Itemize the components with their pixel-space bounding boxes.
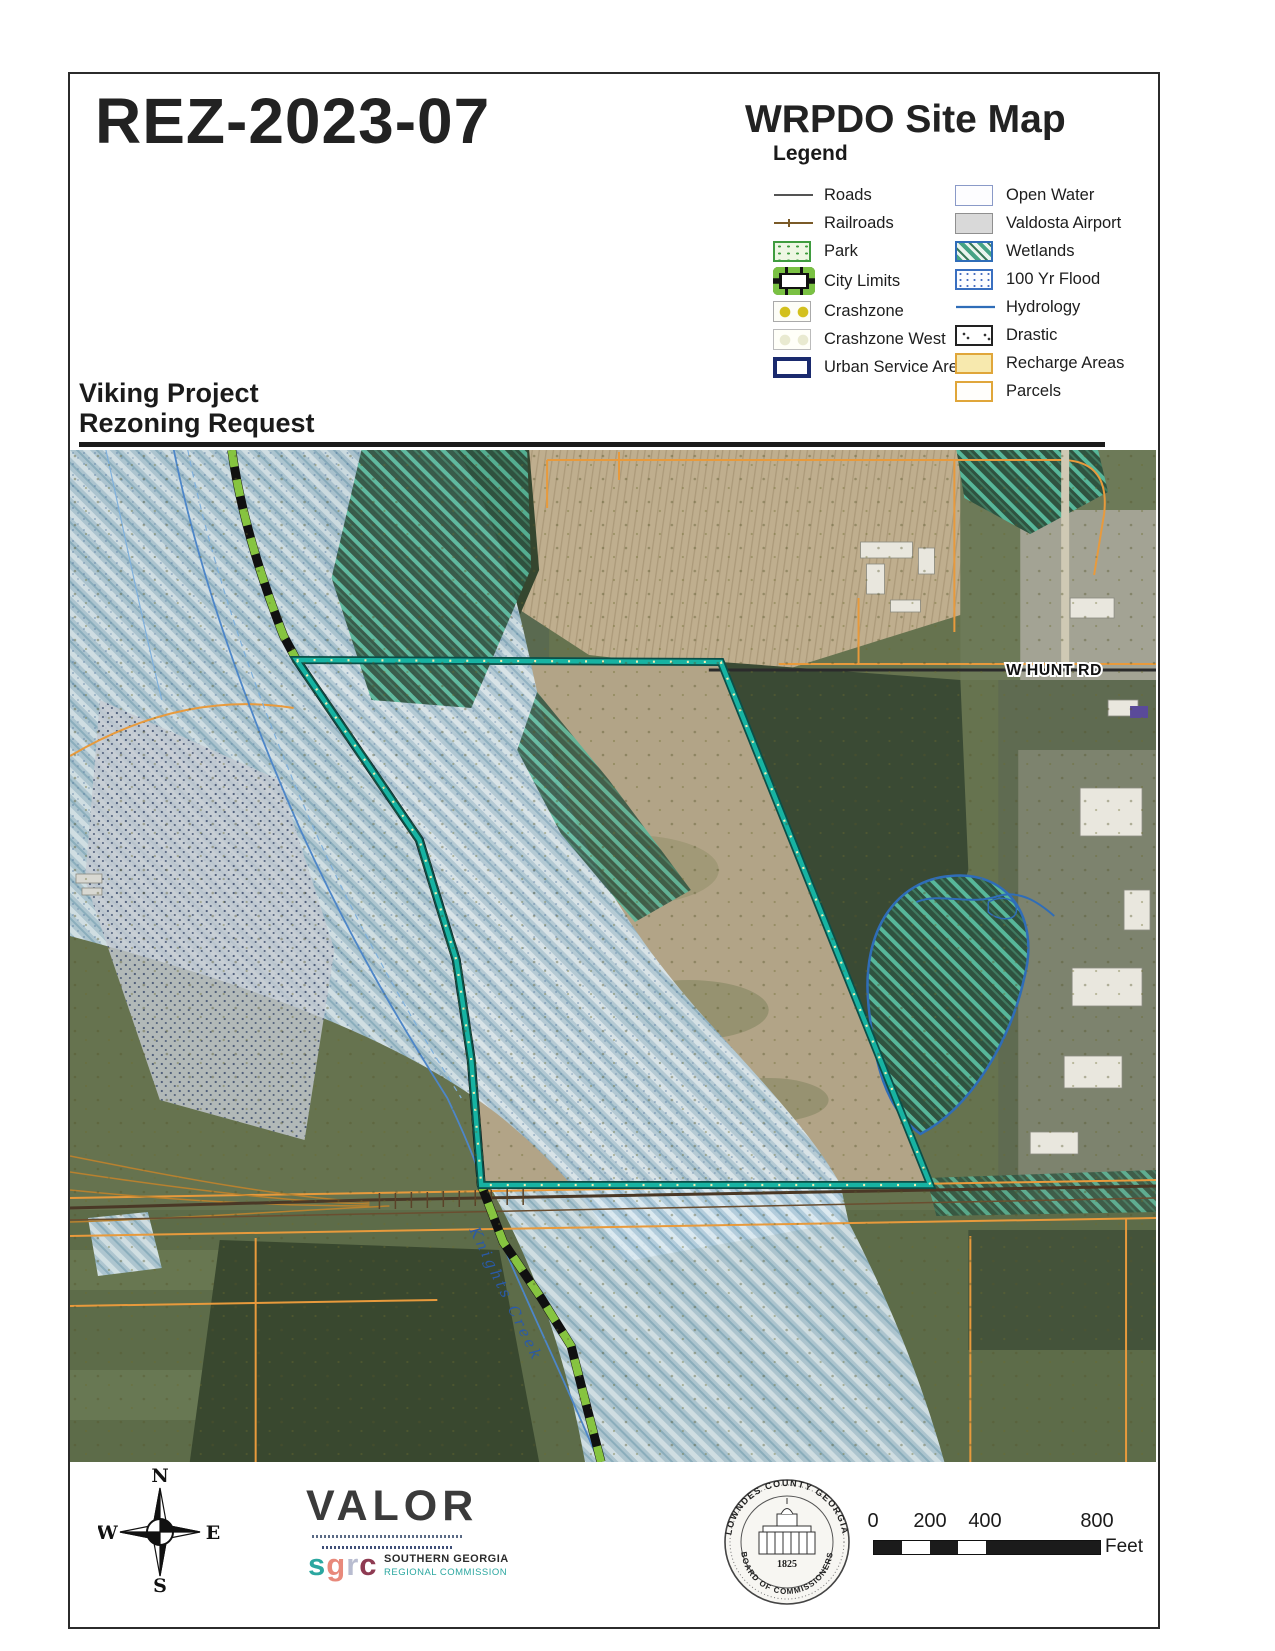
city-limits-swatch-icon [773, 267, 815, 295]
open-water-swatch-icon [955, 185, 997, 206]
legend-label: Drastic [1006, 326, 1057, 345]
case-number-title: REZ-2023-07 [95, 84, 490, 158]
compass-south-label: S [153, 1575, 167, 1594]
railroads-line-icon [773, 217, 815, 229]
roads-line-icon [773, 190, 815, 200]
document-page: REZ-2023-07 WRPDO Site Map Legend Roads … [0, 0, 1275, 1651]
legend-label: Crashzone [824, 302, 904, 321]
legend-item: Open Water [955, 181, 1124, 209]
valor-tagline-line [312, 1535, 464, 1538]
seal-year: 1825 [777, 1559, 797, 1570]
compass-west-label: W [98, 1522, 118, 1544]
legend-label: Railroads [824, 214, 894, 233]
legend-item: Roads [773, 181, 967, 209]
legend-label: Valdosta Airport [1006, 214, 1121, 233]
scale-tick-0: 0 [867, 1510, 878, 1533]
legend-label: Roads [824, 186, 872, 205]
valdosta-airport-swatch-icon [955, 213, 997, 234]
map-title: WRPDO Site Map [745, 98, 1066, 142]
site-map-svg: W HUNT RD Knights Creek [70, 450, 1156, 1462]
legend-label: Recharge Areas [1006, 354, 1124, 373]
legend-label: Open Water [1006, 186, 1094, 205]
parcels-swatch-icon [955, 381, 997, 402]
compass-north-label: N [151, 1465, 168, 1487]
road-label: W HUNT RD [1006, 662, 1102, 679]
site-map: W HUNT RD Knights Creek [70, 450, 1156, 1462]
hydrology-line-icon [955, 302, 997, 312]
project-title-line1: Viking Project [79, 378, 315, 408]
compass-rose: N S W E [98, 1462, 222, 1594]
park-swatch-icon [773, 241, 815, 262]
scale-tick-800: 800 [1080, 1510, 1113, 1533]
scale-unit-label: Feet [1105, 1536, 1143, 1558]
legend-item: Valdosta Airport [955, 209, 1124, 237]
legend-item: 100 Yr Flood [955, 265, 1124, 293]
legend-title: Legend [773, 142, 848, 166]
legend-item: Urban Service Area [773, 353, 967, 381]
scale-tick-400: 400 [968, 1510, 1001, 1533]
crashzone-swatch-icon [773, 301, 815, 322]
county-seal: LOWNDES COUNTY GEORGIA BOARD OF COMMISSI… [715, 1470, 859, 1614]
wetlands-swatch-icon [955, 241, 997, 262]
legend-item: Parcels [955, 377, 1124, 405]
valor-logo: VALOR [306, 1482, 478, 1531]
legend-label: City Limits [824, 272, 900, 291]
sgrc-org-line1: SOUTHERN GEORGIA [384, 1553, 509, 1565]
project-title: Viking Project Rezoning Request [79, 378, 315, 438]
legend-item: Crashzone West [773, 325, 967, 353]
urban-service-area-swatch-icon [773, 357, 815, 378]
legend-label: 100 Yr Flood [1006, 270, 1100, 289]
legend-item: Crashzone [773, 297, 967, 325]
project-title-line2: Rezoning Request [79, 408, 315, 438]
legend-label: Crashzone West [824, 330, 946, 349]
title-divider-rule [79, 442, 1105, 447]
legend-item: Park [773, 237, 967, 265]
legend-item: City Limits [773, 265, 967, 297]
legend-item: Recharge Areas [955, 349, 1124, 377]
legend-item: Hydrology [955, 293, 1124, 321]
legend-item: Railroads [773, 209, 967, 237]
recharge-areas-swatch-icon [955, 353, 997, 374]
scale-bar [873, 1540, 1101, 1555]
legend-label: Wetlands [1006, 242, 1074, 261]
speckle-overlay [70, 450, 1156, 1462]
legend-label: Park [824, 242, 858, 261]
legend-column-left: Roads Railroads Park City Limits Crashzo… [773, 181, 967, 381]
compass-star [120, 1488, 200, 1576]
drastic-swatch-icon [955, 325, 997, 346]
legend-column-right: Open Water Valdosta Airport Wetlands 100… [955, 181, 1124, 405]
legend-item: Drastic [955, 321, 1124, 349]
legend-item: Wetlands [955, 237, 1124, 265]
legend-label: Urban Service Area [824, 358, 967, 377]
flood-swatch-icon [955, 269, 997, 290]
sgrc-logo: sgrc [308, 1549, 378, 1580]
scale-tick-200: 200 [913, 1510, 946, 1533]
crashzone-west-swatch-icon [773, 329, 815, 350]
compass-east-label: E [206, 1522, 220, 1544]
legend-label: Hydrology [1006, 298, 1080, 317]
legend-label: Parcels [1006, 382, 1061, 401]
sgrc-org-line2: REGIONAL COMMISSION [384, 1567, 507, 1578]
